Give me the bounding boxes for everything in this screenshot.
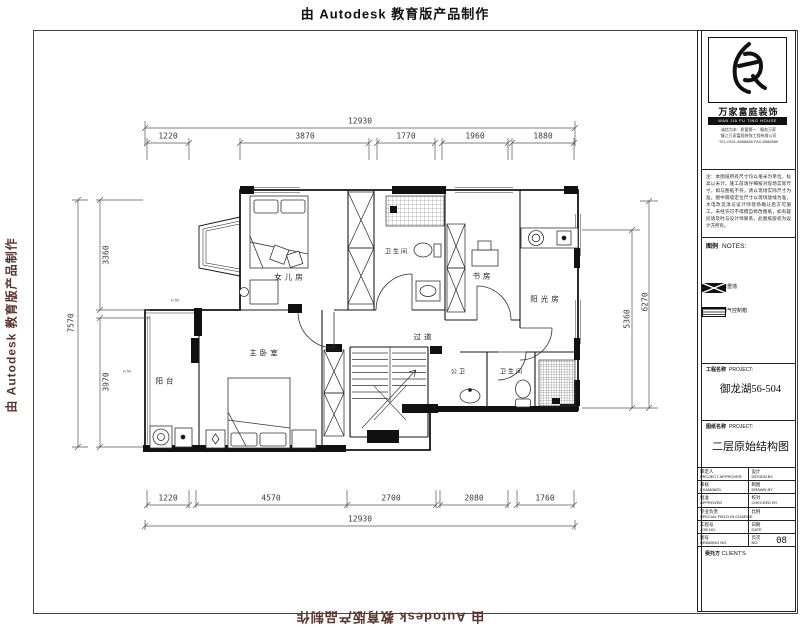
room-label-master: 主卧室: [249, 348, 281, 359]
cell-en: CHECKED BY: [751, 500, 795, 505]
dim-left-s2: 3970: [102, 372, 111, 391]
dim-bottom-s1: 1220: [158, 494, 177, 503]
dim-left-overall: 7570: [67, 313, 76, 332]
legend-item-bearing-wall: 承重墙: [702, 283, 737, 295]
cell-en: NO.: [751, 540, 795, 545]
project-name-value: 御龙湖56-504: [706, 381, 795, 396]
cell-cn: 比例: [751, 509, 795, 514]
client-label-en: CLIENT'S: [722, 551, 746, 557]
dim-top-s2: 3870: [295, 132, 314, 141]
cell-en: PROJECT APPROVER: [700, 474, 748, 479]
table-cell: 图号DRAWING NO.: [698, 534, 748, 547]
cell-en: EXAMINED: [700, 487, 748, 492]
room-label-guest-wc: 公卫: [451, 367, 467, 376]
title-block: 万家富庭装饰 WAN JIA FU TING HOUSE 诚信为本 · 质量第一…: [697, 30, 796, 612]
annotation-window-height-2: H.50: [123, 369, 131, 374]
dim-top-s3: 1770: [396, 132, 415, 141]
table-cell-page-no: 页次NO.08: [748, 534, 795, 547]
annotation-window-height-1: H.50: [171, 298, 179, 303]
dim-right-inner: 5360: [623, 309, 632, 328]
page-number: 08: [776, 536, 787, 546]
table-cell: 比例: [748, 508, 795, 521]
closet-columns: [324, 192, 465, 436]
table-cell: 审核EXAMINED: [698, 481, 748, 494]
room-label-daughter: 女儿房: [274, 272, 306, 283]
cad-floorplan-screenshot: { "watermark": { "text": "由 Autodesk 教育版…: [0, 0, 800, 640]
dimension-lines: [72, 121, 658, 530]
table-cell: 专业负责SPECIAL FIELD IN CHARGE: [698, 508, 748, 521]
dim-top-s5: 1880: [533, 132, 552, 141]
room-label-bath-top: 卫生间: [385, 247, 409, 256]
cell-en: DRAWING NO.: [700, 540, 748, 545]
cell-en: DATE: [751, 527, 795, 532]
company-contact-line: TEL:0511-8588888 FAX:8588889: [702, 139, 795, 145]
table-cell: 校对CHECKED BY: [748, 494, 795, 507]
table-cell: 批准APPROVED: [698, 494, 748, 507]
general-notes: 注：本图纸所有尺寸均以毫米为单位，标高以米计。施工前请仔细核对现场实际尺寸，如与…: [702, 169, 795, 235]
table-cell: 工程号JOB NO.: [698, 521, 748, 534]
floor-plan-svg: [0, 0, 800, 640]
client-row: 委托方 CLIENT'S: [702, 547, 795, 561]
project-name-section: 工程名称PROJECT: 御龙湖56-504: [702, 363, 795, 396]
table-cell: 制图DRAWN BY: [748, 481, 795, 494]
dim-top-s4: 1960: [465, 132, 484, 141]
room-label-sunroom: 阳光房: [530, 294, 562, 305]
dim-bottom-s3: 2700: [381, 494, 400, 503]
table-cell: 审定人PROJECT APPROVER: [698, 468, 748, 481]
cell-en: DRAWN BY: [751, 487, 795, 492]
drawing-label-en: PROJECT:: [729, 424, 753, 430]
bay-window: [199, 217, 240, 276]
legend-header-en: NOTES:: [722, 243, 746, 250]
dim-bottom-overall: 12930: [348, 515, 372, 524]
room-label-bath-bottom: 卫生间: [500, 367, 524, 376]
legend-header: 图例NOTES:: [702, 237, 795, 250]
table-cell: 设计DESIGN BY: [748, 468, 795, 481]
dim-right-outer: 6270: [641, 292, 650, 311]
cell-en: DESIGN BY: [751, 474, 795, 479]
table-cell: 日期DATE: [748, 521, 795, 534]
company-name-en: WAN JIA FU TING HOUSE: [708, 117, 787, 125]
dim-bottom-s4: 2080: [464, 494, 483, 503]
room-label-hallway: 过道: [414, 332, 435, 343]
room-label-balcony: 阳台: [156, 376, 177, 387]
cell-en: JOB NO.: [700, 527, 748, 532]
company-logo: [708, 37, 787, 103]
approval-table: 审定人PROJECT APPROVER 设计DESIGN BY 审核EXAMIN…: [698, 467, 795, 547]
legend-item-electric-box: 电气控制箱: [702, 307, 747, 319]
project-label-en: PROJECT:: [729, 367, 753, 373]
legend-header-cn: 图例: [706, 244, 718, 250]
drawing-name-section: 图纸名称PROJECT: 二层原始结构图: [702, 420, 795, 454]
project-label-cn: 工程名称: [706, 367, 726, 373]
dim-top-overall: 12930: [348, 117, 372, 126]
client-label-cn: 委托方: [705, 551, 720, 557]
dim-left-s1: 3360: [102, 245, 111, 264]
room-label-study: 书房: [473, 271, 494, 282]
cell-en: SPECIAL FIELD IN CHARGE: [700, 514, 748, 519]
cell-en: APPROVED: [700, 500, 748, 505]
bearing-walls: [143, 186, 580, 452]
drawing-name-value: 二层原始结构图: [706, 438, 795, 454]
staircase: [352, 347, 426, 428]
dim-top-s1: 1220: [158, 132, 177, 141]
drawing-label-cn: 图纸名称: [706, 424, 726, 430]
dim-bottom-s5: 1760: [535, 494, 554, 503]
logo-glyph: [709, 38, 785, 98]
dim-bottom-s2: 4570: [261, 494, 280, 503]
